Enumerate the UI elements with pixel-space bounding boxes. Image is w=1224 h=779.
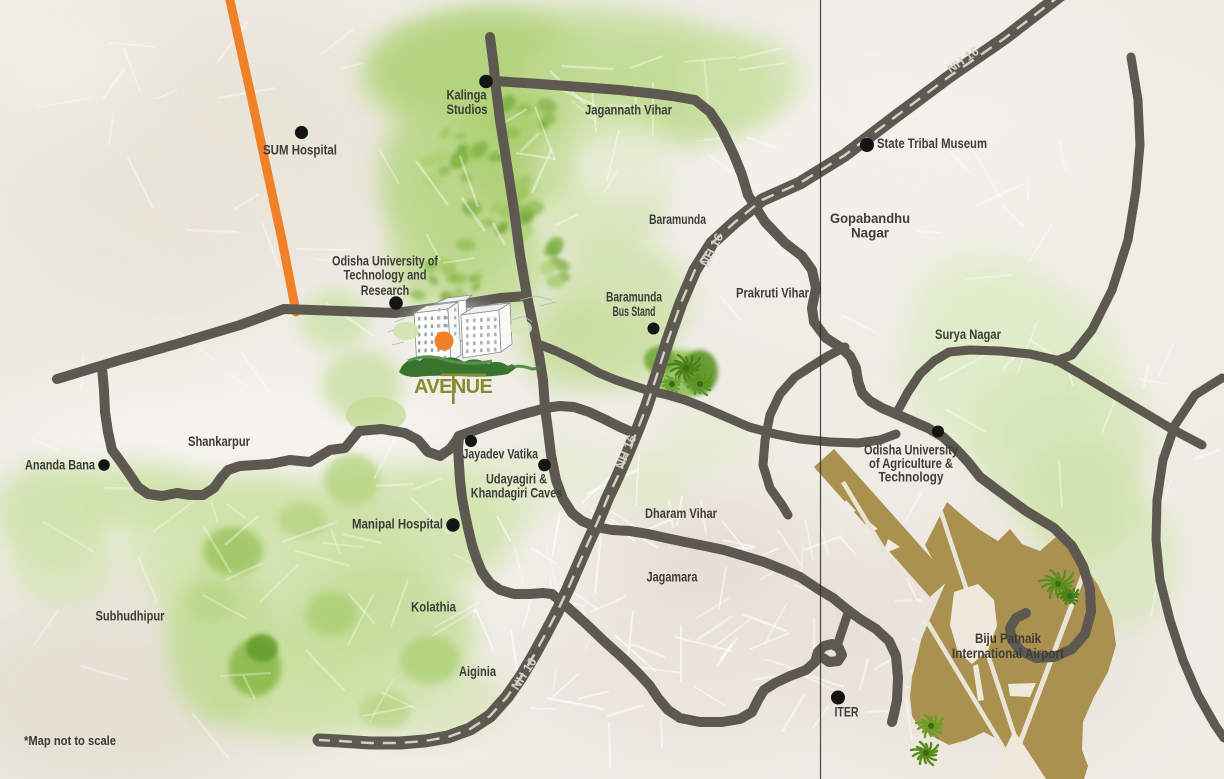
svg-text:Prakruti Vihar: Prakruti Vihar: [736, 286, 810, 301]
svg-text:Subhudhipur: Subhudhipur: [96, 609, 166, 624]
svg-text:SUM Hospital: SUM Hospital: [263, 143, 337, 158]
svg-text:Aiginia: Aiginia: [459, 664, 496, 679]
svg-text:Surya Nagar: Surya Nagar: [935, 327, 1002, 342]
svg-text:*Map not to scale: *Map not to scale: [24, 733, 116, 748]
svg-text:Jayadev Vatika: Jayadev Vatika: [463, 447, 539, 462]
svg-text:ITER: ITER: [835, 705, 859, 720]
svg-text:Jagannath Vihar: Jagannath Vihar: [585, 103, 673, 118]
svg-text:State Tribal Museum: State Tribal Museum: [877, 136, 987, 151]
svg-text:Ananda Bana: Ananda Bana: [25, 458, 95, 473]
svg-text:Jagamara: Jagamara: [647, 570, 698, 585]
svg-text:Kolathia: Kolathia: [411, 600, 456, 615]
svg-text:Baramunda: Baramunda: [649, 212, 706, 227]
svg-text:Manipal Hospital: Manipal Hospital: [352, 517, 443, 532]
svg-text:BaramundaBus Stand: BaramundaBus Stand: [606, 290, 662, 320]
svg-text:Dharam Vihar: Dharam Vihar: [645, 506, 718, 521]
svg-text:KalingaStudios: KalingaStudios: [447, 87, 488, 117]
svg-text:Shankarpur: Shankarpur: [188, 434, 251, 449]
